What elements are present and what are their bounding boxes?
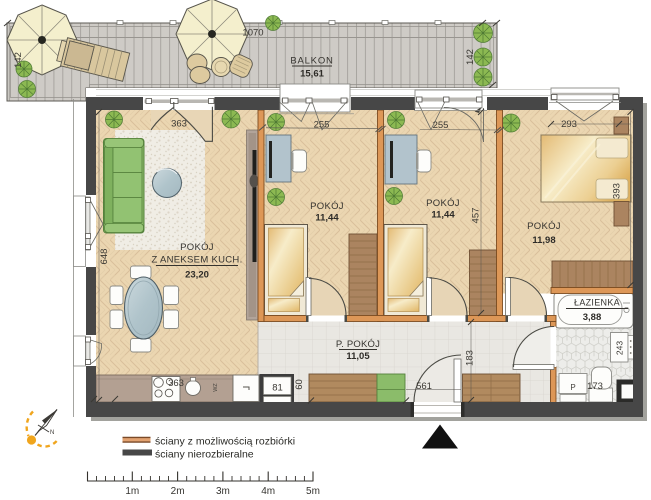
svg-text:561: 561	[416, 381, 432, 392]
svg-text:P. POKÓJ: P. POKÓJ	[336, 339, 380, 350]
svg-text:11,44: 11,44	[431, 210, 455, 221]
svg-text:ŁAZIENKA: ŁAZIENKA	[574, 298, 620, 308]
svg-text:15,61: 15,61	[300, 69, 324, 80]
svg-text:Z ANEKSEM KUCH.: Z ANEKSEM KUCH.	[151, 255, 242, 266]
svg-text:81: 81	[272, 383, 283, 394]
svg-text:POKÓJ: POKÓJ	[310, 201, 344, 212]
svg-text:ściany z możliwością rozbiórki: ściany z możliwością rozbiórki	[155, 436, 295, 448]
svg-text:1070: 1070	[242, 28, 263, 39]
svg-text:23,20: 23,20	[185, 270, 209, 281]
svg-text:243: 243	[615, 341, 625, 355]
svg-text:11,05: 11,05	[346, 351, 370, 362]
svg-text:BALKON: BALKON	[290, 56, 333, 67]
svg-text:1m: 1m	[125, 486, 139, 497]
svg-text:POKÓJ: POKÓJ	[527, 221, 561, 232]
svg-text:11,44: 11,44	[315, 213, 339, 224]
svg-text:142: 142	[13, 52, 24, 68]
svg-text:363: 363	[171, 119, 187, 130]
svg-text:WZ: WZ	[213, 383, 219, 392]
svg-text:3,88: 3,88	[583, 312, 602, 323]
svg-text:457: 457	[471, 208, 482, 224]
svg-text:255: 255	[433, 120, 449, 131]
svg-text:363: 363	[168, 378, 184, 389]
svg-text:142: 142	[465, 49, 476, 65]
svg-text:POKÓJ: POKÓJ	[426, 198, 460, 209]
svg-text:POKÓJ: POKÓJ	[180, 242, 214, 253]
svg-text:5m: 5m	[306, 486, 320, 497]
svg-text:3m: 3m	[216, 486, 230, 497]
svg-text:183: 183	[465, 350, 476, 366]
svg-text:4m: 4m	[261, 486, 275, 497]
svg-text:N: N	[50, 430, 54, 436]
svg-text:648: 648	[99, 249, 110, 265]
svg-text:255: 255	[314, 120, 330, 131]
svg-text:293: 293	[561, 119, 577, 130]
svg-text:ściany nierozbieralne: ściany nierozbieralne	[155, 449, 254, 461]
svg-text:60: 60	[294, 379, 305, 390]
svg-text:2m: 2m	[171, 486, 185, 497]
svg-text:11,98: 11,98	[532, 235, 555, 246]
svg-text:P: P	[570, 383, 575, 392]
svg-text:173: 173	[587, 381, 603, 392]
svg-text:393: 393	[612, 183, 623, 199]
